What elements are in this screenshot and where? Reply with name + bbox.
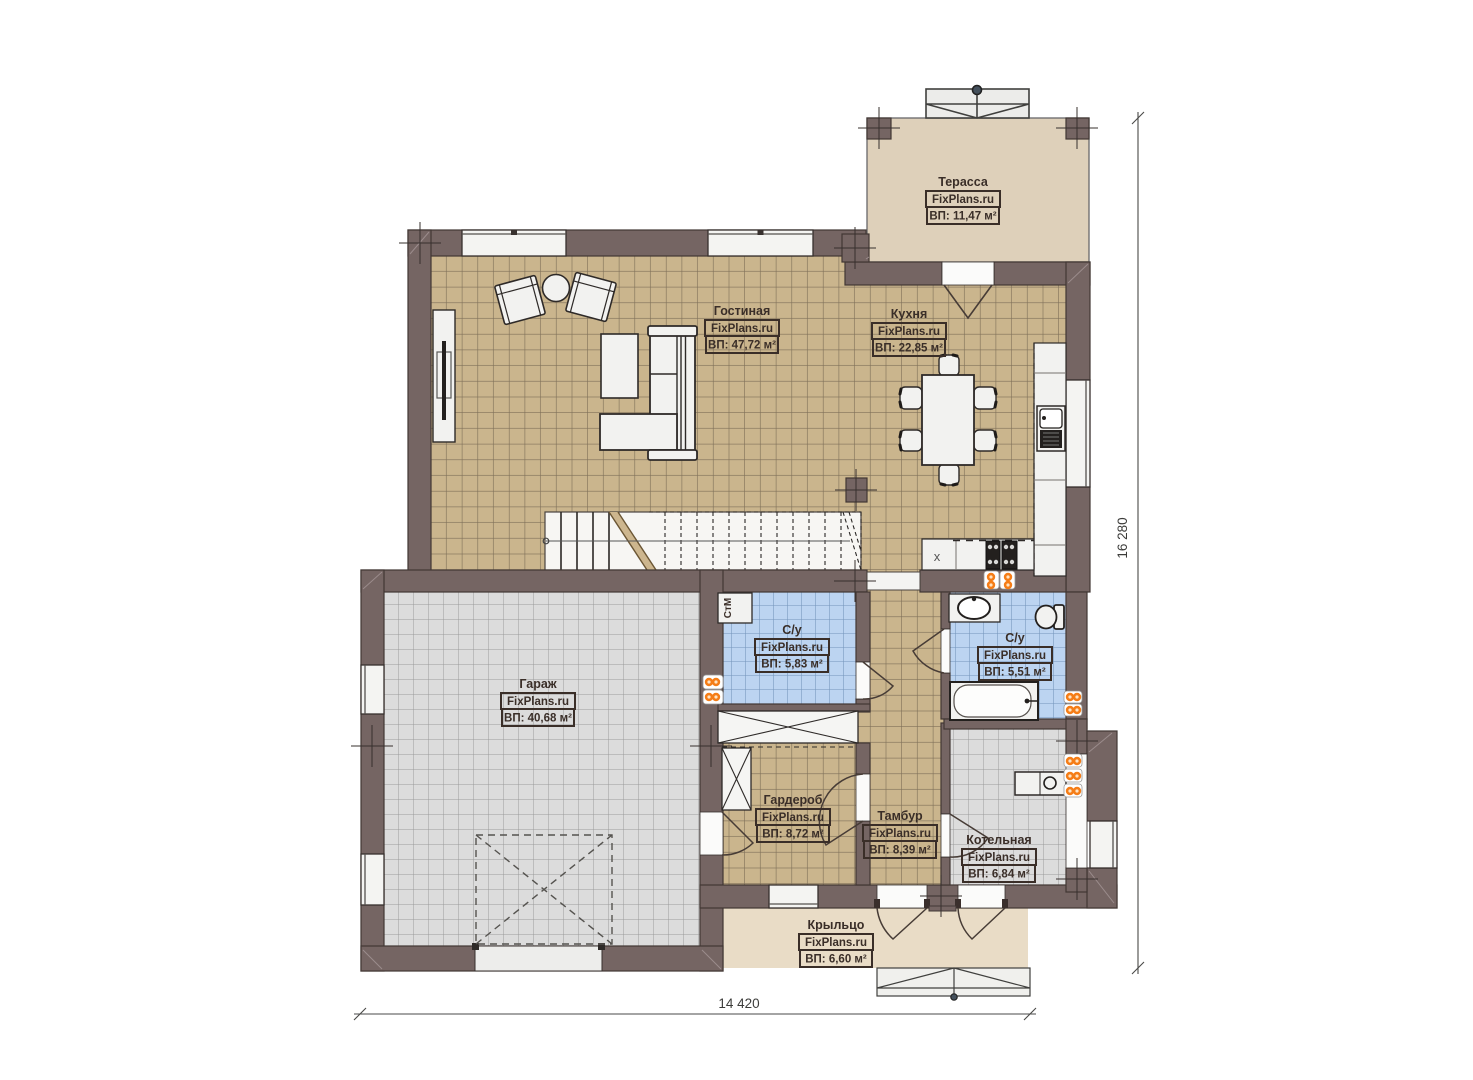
svg-text:ВП: 5,83 м²: ВП: 5,83 м² (761, 659, 823, 671)
svg-text:ВП: 6,84 м²: ВП: 6,84 м² (968, 869, 1030, 881)
svg-text:FixPlans.ru: FixPlans.ru (932, 194, 994, 206)
svg-text:ВП: 11,47 м²: ВП: 11,47 м² (929, 211, 996, 223)
svg-text:ВП: 6,60 м²: ВП: 6,60 м² (805, 954, 867, 966)
svg-text:ВП: 8,72 м²: ВП: 8,72 м² (762, 829, 824, 841)
svg-text:Терасса: Терасса (938, 175, 989, 189)
svg-text:Кухня: Кухня (891, 307, 928, 321)
svg-text:FixPlans.ru: FixPlans.ru (869, 828, 931, 840)
svg-text:СтМ: СтМ (723, 598, 734, 618)
svg-text:FixPlans.ru: FixPlans.ru (805, 937, 867, 949)
svg-text:FixPlans.ru: FixPlans.ru (762, 812, 824, 824)
svg-text:С/у: С/у (1005, 631, 1025, 645)
svg-text:FixPlans.ru: FixPlans.ru (507, 696, 569, 708)
svg-text:FixPlans.ru: FixPlans.ru (968, 852, 1030, 864)
svg-text:ВП: 40,68 м²: ВП: 40,68 м² (504, 713, 572, 725)
svg-text:ВП: 22,85 м²: ВП: 22,85 м² (875, 343, 943, 355)
svg-text:16 280: 16 280 (1115, 517, 1130, 558)
svg-text:Гараж: Гараж (519, 677, 556, 691)
svg-text:FixPlans.ru: FixPlans.ru (761, 642, 823, 654)
svg-text:С/у: С/у (782, 623, 802, 637)
svg-text:x: x (934, 549, 941, 564)
svg-text:FixPlans.ru: FixPlans.ru (711, 323, 773, 335)
svg-text:Тамбур: Тамбур (877, 809, 923, 823)
svg-text:Гостиная: Гостиная (714, 304, 771, 318)
svg-text:Крыльцо: Крыльцо (808, 918, 865, 932)
svg-text:Гардероб: Гардероб (763, 793, 822, 807)
svg-text:FixPlans.ru: FixPlans.ru (984, 650, 1046, 662)
svg-text:Котельная: Котельная (966, 833, 1031, 847)
svg-text:ВП: 5,51 м²: ВП: 5,51 м² (984, 667, 1046, 679)
svg-text:ВП: 8,39 м²: ВП: 8,39 м² (869, 845, 931, 857)
svg-text:14 420: 14 420 (718, 996, 759, 1011)
svg-text:ВП: 47,72 м²: ВП: 47,72 м² (708, 340, 776, 352)
svg-text:FixPlans.ru: FixPlans.ru (878, 326, 940, 338)
